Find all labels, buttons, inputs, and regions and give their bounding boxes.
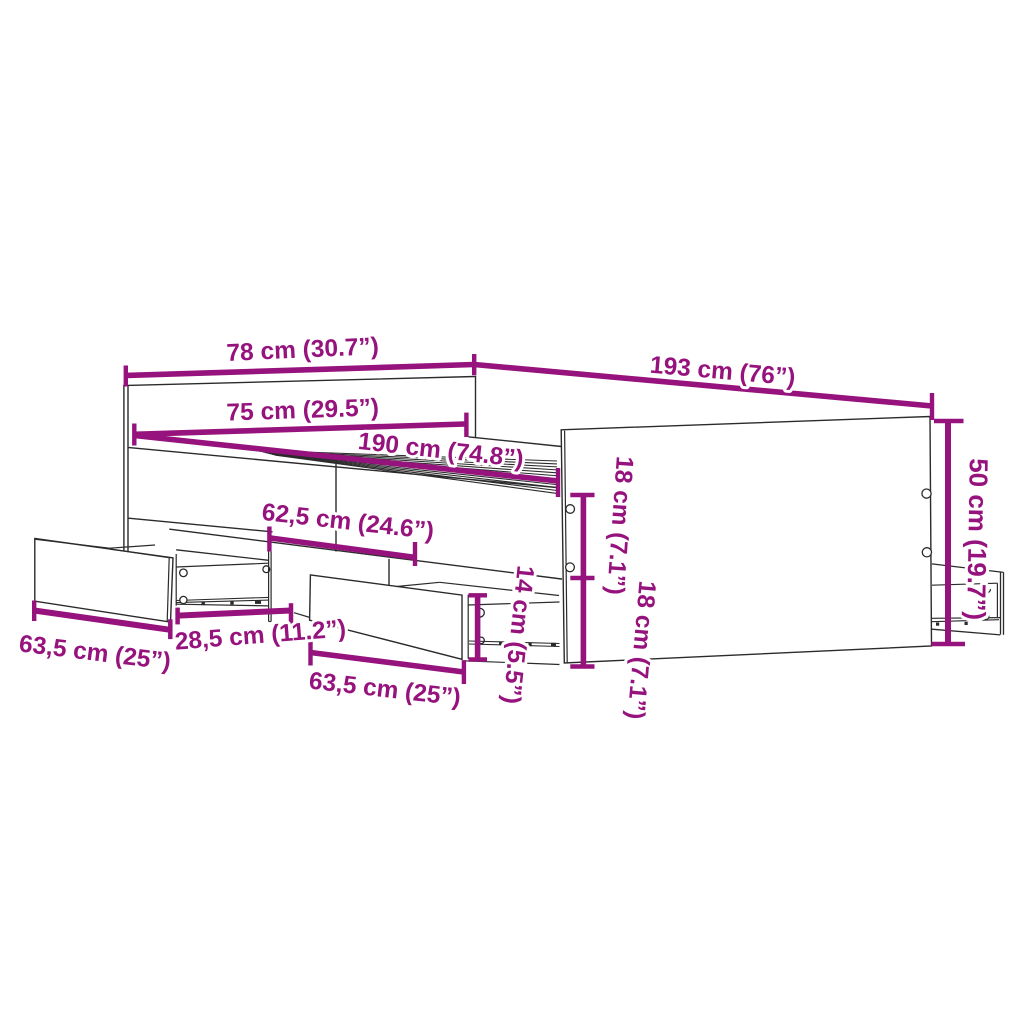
svg-text:50 cm (19.7”): 50 cm (19.7”) bbox=[961, 458, 994, 620]
svg-text:75 cm (29.5”): 75 cm (29.5”) bbox=[226, 394, 379, 426]
